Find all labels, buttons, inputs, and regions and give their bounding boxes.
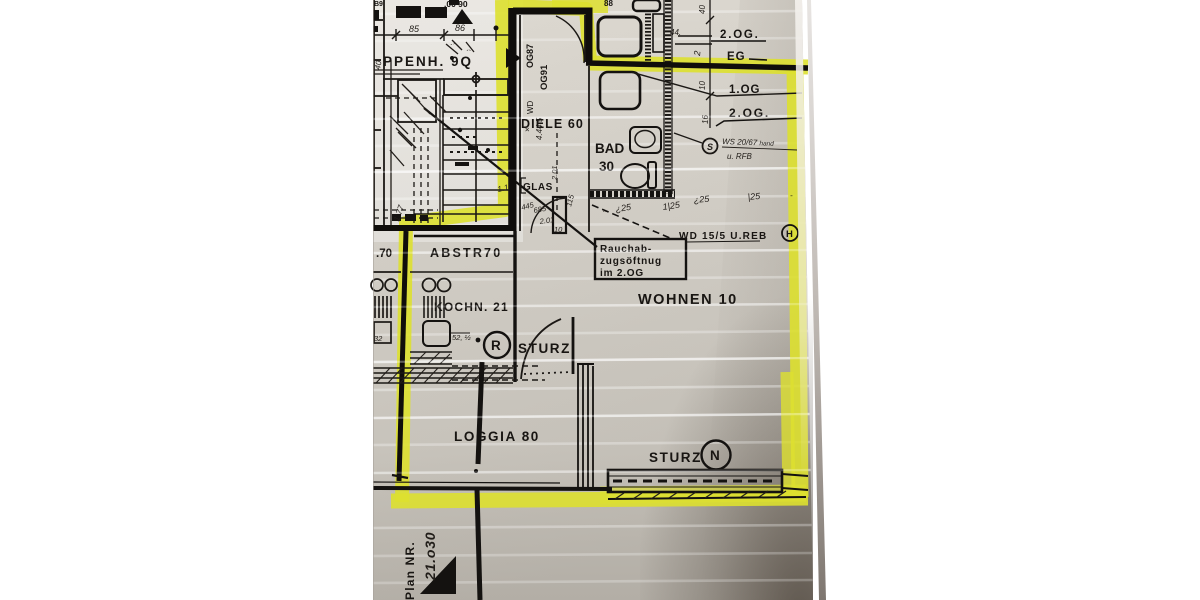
svg-text:GLAS: GLAS xyxy=(523,182,553,193)
svg-text:|25: |25 xyxy=(747,191,761,202)
svg-text:zugsöftnug: zugsöftnug xyxy=(600,256,662,267)
svg-text:10: 10 xyxy=(698,81,707,90)
svg-text:u. RFB: u. RFB xyxy=(727,152,753,161)
svg-text:...: ... xyxy=(603,205,610,214)
svg-text:OG91: OG91 xyxy=(539,64,550,90)
svg-text:WD: WD xyxy=(526,100,535,114)
svg-text:im 2.OG: im 2.OG xyxy=(600,268,644,279)
svg-text:21.o30: 21.o30 xyxy=(422,532,438,581)
svg-text:40: 40 xyxy=(698,5,707,14)
svg-text:32: 32 xyxy=(374,334,383,343)
svg-text:¿25: ¿25 xyxy=(693,194,710,205)
svg-text:B9: B9 xyxy=(374,1,383,8)
svg-text:S: S xyxy=(707,142,713,152)
svg-text:Rauchab-: Rauchab- xyxy=(600,244,652,255)
svg-text:30: 30 xyxy=(599,159,614,174)
svg-text:44.: 44. xyxy=(670,28,681,37)
svg-text:2.OG.: 2.OG. xyxy=(729,106,770,120)
svg-text:2.OG.: 2.OG. xyxy=(720,29,760,41)
svg-text:2: 2 xyxy=(692,50,702,57)
svg-text:N: N xyxy=(710,448,720,463)
svg-text:86: 86 xyxy=(455,23,465,33)
svg-text:Plan NR.: Plan NR. xyxy=(403,541,417,600)
svg-text:R: R xyxy=(491,338,501,353)
svg-text:WD 15/5 U.REB: WD 15/5 U.REB xyxy=(679,231,767,242)
svg-text:DIELE 60: DIELE 60 xyxy=(521,117,584,131)
svg-text:10: 10 xyxy=(554,225,563,234)
svg-text:-: - xyxy=(790,191,793,200)
svg-text:BAD: BAD xyxy=(595,141,624,156)
svg-text:2.01: 2.01 xyxy=(550,165,559,181)
svg-text:STURZ: STURZ xyxy=(649,450,702,465)
svg-text:85: 85 xyxy=(409,24,420,34)
svg-text:PPENH. 9Q: PPENH. 9Q xyxy=(383,54,473,69)
svg-text:.00 90: .00 90 xyxy=(444,0,468,9)
svg-text:52, ½: 52, ½ xyxy=(452,333,472,342)
svg-text:EG: EG xyxy=(727,51,746,63)
svg-text:88: 88 xyxy=(604,0,613,8)
svg-text:OG87: OG87 xyxy=(525,44,535,68)
svg-text:LOGGIA 80: LOGGIA 80 xyxy=(454,429,540,444)
svg-text:H: H xyxy=(786,229,793,240)
